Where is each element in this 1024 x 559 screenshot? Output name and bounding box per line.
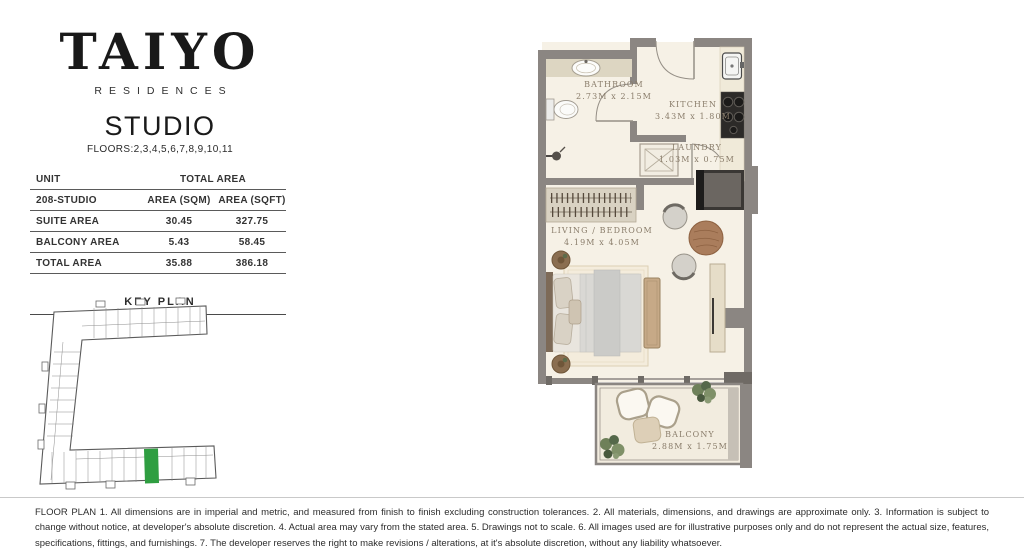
row-label: TOTAL AREA [30,258,140,269]
disclaimer-text: FLOOR PLAN 1. All dimensions are in impe… [35,505,989,551]
room-label-living-bedroom: LIVING / BEDROOM4.19M x 4.05M [551,225,653,249]
room-label-balcony: BALCONY2.88M x 1.75M [652,429,728,453]
room-label-kitchen: KITCHEN3.43M x 1.80M [655,99,731,123]
row-label: SUITE AREA [30,216,140,227]
table-row: TOTAL AREA 35.88 386.18 [30,253,286,274]
room-label-bathroom: BATHROOM2.73M x 2.15M [576,79,652,103]
total-area-header: TOTAL AREA [140,174,286,185]
row-sqft: 58.45 [218,237,286,248]
headboard [546,272,553,352]
unit-type-title: STUDIO [30,111,290,142]
area-table: UNIT TOTAL AREA 208-STUDIO AREA (SQM) AR… [30,169,286,274]
table-row: BALCONY AREA 5.43 58.45 [30,232,286,253]
sqm-header: AREA (SQM) [140,195,218,206]
floor-plan-sheet: TAIYO RESIDENCES STUDIO FLOORS:2,3,4,5,6… [0,0,1024,559]
brand-logo: TAIYO [30,26,290,79]
table-row: SUITE AREA 30.45 327.75 [30,211,286,232]
brand-subtitle: RESIDENCES [30,85,290,97]
area-table-subheader-row: 208-STUDIO AREA (SQM) AREA (SQFT) [30,190,286,211]
area-table-header-row: UNIT TOTAL AREA [30,169,286,190]
toilet-icon [546,99,554,120]
row-sqft: 327.75 [218,216,286,227]
tv-console-icon [710,264,725,352]
room-label-laundry: LAUNDRY1.03M x 0.75M [659,142,735,166]
row-sqm: 30.45 [140,216,218,227]
key-plan-drawing [36,296,226,502]
pillow [569,300,581,324]
footer-divider [0,497,1024,498]
floor-plan: BATHROOM2.73M x 2.15M KITCHEN3.43M x 1.8… [538,20,758,498]
sqft-header: AREA (SQFT) [218,195,286,206]
row-sqm: 5.43 [140,237,218,248]
wardrobe-icon [546,188,636,222]
info-panel: TAIYO RESIDENCES STUDIO FLOORS:2,3,4,5,6… [30,26,290,315]
unit-floors: FLOORS:2,3,4,5,6,7,8,9,10,11 [30,144,290,155]
row-sqm: 35.88 [140,258,218,269]
key-plan-highlight-unit [144,449,159,484]
row-label: BALCONY AREA [30,237,140,248]
unit-header: UNIT [30,174,140,185]
bench-icon [644,278,660,348]
unit-id: 208-STUDIO [30,195,140,206]
row-sqft: 386.18 [218,258,286,269]
